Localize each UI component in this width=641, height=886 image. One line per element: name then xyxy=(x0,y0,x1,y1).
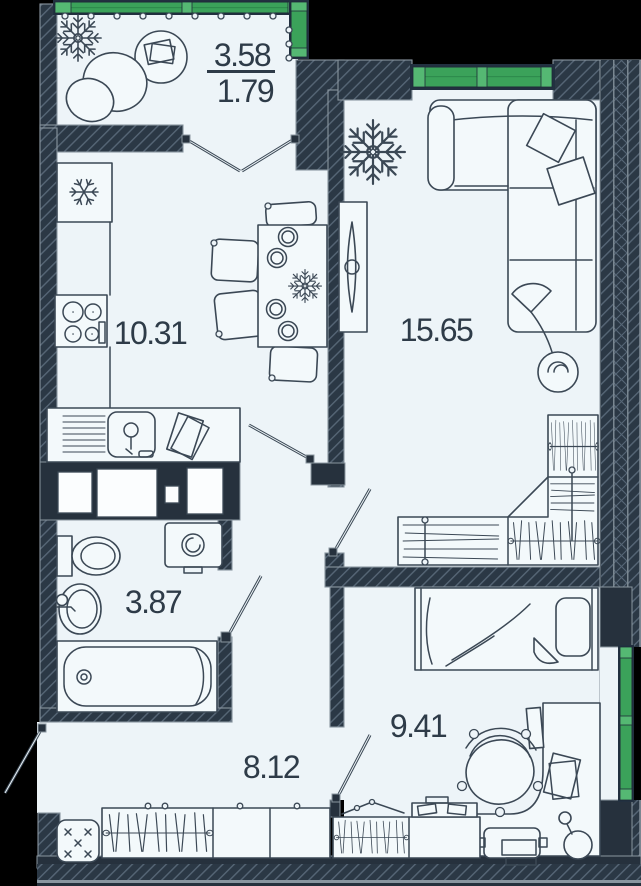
kitchen-area-label: 10.31 xyxy=(114,315,187,351)
kitchen-top-wall xyxy=(40,125,183,152)
partition-end-block xyxy=(311,463,345,485)
balcony-reduced-area-label: 1.79 xyxy=(217,73,274,109)
bedroom-area-label: 9.41 xyxy=(390,708,447,744)
balcony-area-label: 3.58 xyxy=(214,37,271,73)
dining-chair xyxy=(211,239,259,282)
floor-plan: 3.58 1.79 10.31 15.65 3.87 8.12 9.41 xyxy=(0,0,641,886)
pouf-icon xyxy=(57,820,99,862)
bed-icon xyxy=(415,588,598,670)
sofa-armrest xyxy=(428,106,454,190)
monitor-icon xyxy=(526,707,543,748)
floor-plan-canvas: 3.58 1.79 10.31 15.65 3.87 8.12 9.41 xyxy=(0,0,641,886)
hallway-area-label: 8.12 xyxy=(243,749,300,785)
living-bedroom-wall xyxy=(325,567,600,587)
living-top-wall-right xyxy=(553,60,600,100)
toilet-icon xyxy=(57,536,120,576)
tv-icon xyxy=(339,202,367,332)
hall-bedroom-wall xyxy=(330,587,344,727)
balcony-left-wall xyxy=(40,4,57,128)
bathroom-area-label: 3.87 xyxy=(125,584,182,620)
bathtub-icon xyxy=(57,641,217,712)
dining-chair xyxy=(265,201,316,227)
dining-chair xyxy=(269,346,318,382)
stove-icon xyxy=(55,295,107,347)
living-top-wall-left xyxy=(338,60,412,100)
living-room-window xyxy=(410,64,555,90)
living-area-label: 15.65 xyxy=(400,312,473,348)
bedroom-window xyxy=(618,645,634,802)
hallway-wardrobe xyxy=(102,803,330,858)
kitchen-sink-icon xyxy=(47,408,240,462)
bed-pillow xyxy=(556,598,590,656)
washing-machine-icon xyxy=(165,523,222,573)
